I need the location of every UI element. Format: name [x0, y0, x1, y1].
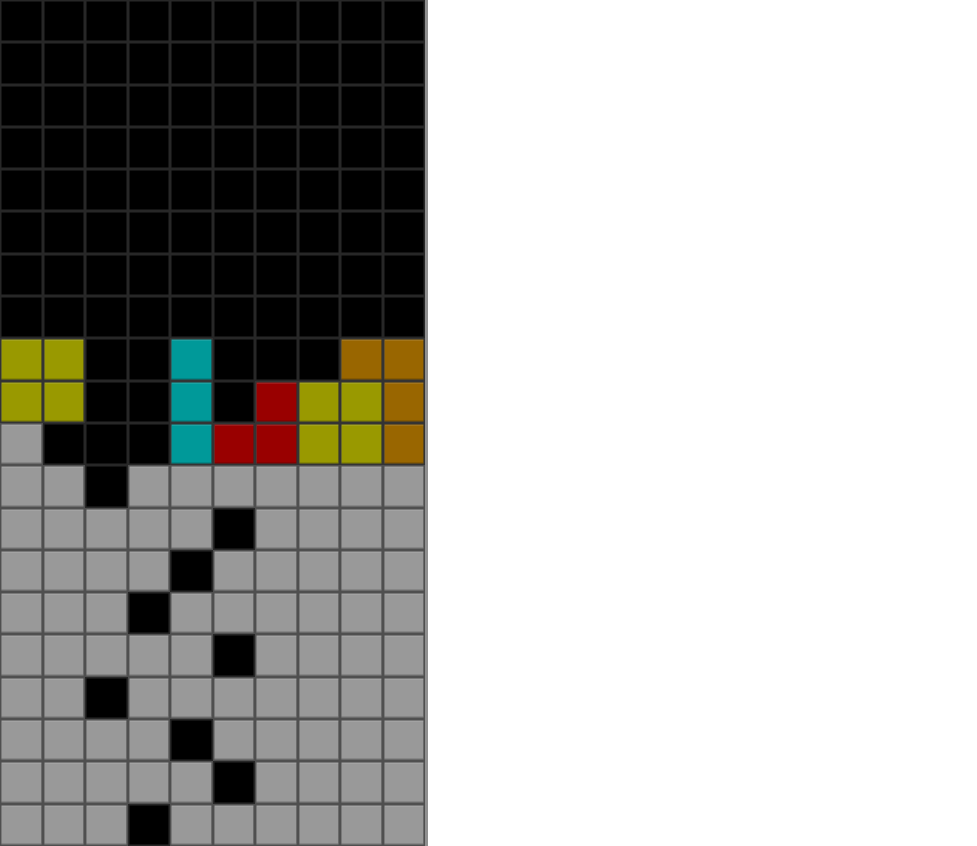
board-cell-empty	[255, 211, 298, 253]
board-cell-red-block	[255, 423, 298, 465]
board-cell-garbage-block	[128, 634, 171, 676]
board-cell-olive-block	[0, 381, 43, 423]
board-cell-garbage-block	[298, 761, 341, 803]
board-cell-garbage-block	[43, 804, 86, 846]
board-cell-garbage-block	[85, 761, 128, 803]
board-cell-garbage-block	[0, 465, 43, 507]
board-cell-olive-block	[43, 338, 86, 380]
board-cell-empty	[0, 127, 43, 169]
board-cell-empty	[128, 296, 171, 338]
board-cell-olive-block	[340, 423, 383, 465]
board-cell-teal-block	[170, 381, 213, 423]
board-cell-empty	[128, 85, 171, 127]
board-cell-empty	[128, 211, 171, 253]
board-cell-garbage-block	[0, 761, 43, 803]
board-cell-garbage-block	[255, 804, 298, 846]
board-cell-empty	[85, 127, 128, 169]
board-cell-garbage-block	[43, 634, 86, 676]
board-cell-garbage-block	[298, 719, 341, 761]
board-cell-empty	[255, 169, 298, 211]
board-cell-empty	[170, 169, 213, 211]
board-cell-garbage-block	[255, 465, 298, 507]
board-cell-garbage-block	[213, 465, 256, 507]
board-cell-garbage-block	[255, 550, 298, 592]
board-cell-garbage-block	[383, 508, 426, 550]
board-cell-empty	[383, 42, 426, 84]
board-cell-garbage-block	[170, 634, 213, 676]
board-cell-garbage-block	[128, 761, 171, 803]
page-canvas	[0, 0, 977, 846]
board-cell-teal-block	[170, 423, 213, 465]
board-cell-empty	[128, 592, 171, 634]
board-cell-empty	[255, 338, 298, 380]
board-cell-garbage-block	[383, 804, 426, 846]
board-cell-garbage-block	[0, 719, 43, 761]
board-cell-empty	[85, 465, 128, 507]
board-cell-garbage-block	[0, 804, 43, 846]
board-cell-garbage-block	[85, 719, 128, 761]
board-cell-empty	[128, 254, 171, 296]
board-cell-empty	[85, 423, 128, 465]
board-cell-garbage-block	[170, 761, 213, 803]
board-cell-empty	[255, 254, 298, 296]
board-cell-garbage-block	[213, 804, 256, 846]
board-cell-empty	[170, 254, 213, 296]
board-cell-empty	[383, 211, 426, 253]
board-cell-empty	[298, 169, 341, 211]
board-cell-orange-block	[383, 423, 426, 465]
board-cell-empty	[340, 0, 383, 42]
board-cell-empty	[0, 169, 43, 211]
board-cell-empty	[213, 42, 256, 84]
board-cell-empty	[213, 0, 256, 42]
board-cell-garbage-block	[43, 592, 86, 634]
board-cell-garbage-block	[43, 508, 86, 550]
board-cell-empty	[213, 296, 256, 338]
board-cell-garbage-block	[85, 634, 128, 676]
board-cell-olive-block	[340, 381, 383, 423]
board-cell-garbage-block	[298, 550, 341, 592]
board-cell-garbage-block	[0, 550, 43, 592]
board-cell-garbage-block	[0, 634, 43, 676]
board-cell-empty	[170, 550, 213, 592]
board-cell-garbage-block	[255, 592, 298, 634]
board-cell-empty	[298, 338, 341, 380]
board-cell-garbage-block	[85, 592, 128, 634]
board-cell-garbage-block	[0, 592, 43, 634]
board-cell-garbage-block	[43, 761, 86, 803]
board-cell-garbage-block	[43, 677, 86, 719]
board-cell-empty	[85, 254, 128, 296]
board-cell-empty	[340, 169, 383, 211]
board-cell-empty	[213, 338, 256, 380]
board-cell-empty	[85, 296, 128, 338]
board-cell-garbage-block	[340, 677, 383, 719]
board-cell-garbage-block	[128, 550, 171, 592]
board-cell-garbage-block	[170, 465, 213, 507]
board-cell-empty	[340, 42, 383, 84]
board-cell-empty	[298, 127, 341, 169]
board-cell-empty	[170, 42, 213, 84]
board-cell-garbage-block	[340, 761, 383, 803]
board-cell-garbage-block	[298, 592, 341, 634]
board-cell-orange-block	[383, 338, 426, 380]
board-cell-empty	[0, 254, 43, 296]
board-cell-empty	[340, 211, 383, 253]
board-cell-empty	[85, 211, 128, 253]
board-cell-empty	[213, 127, 256, 169]
board-cell-empty	[213, 254, 256, 296]
board-cell-teal-block	[170, 338, 213, 380]
board-cell-empty	[85, 85, 128, 127]
board-cell-empty	[213, 211, 256, 253]
board-cell-garbage-block	[85, 508, 128, 550]
board-cell-garbage-block	[383, 465, 426, 507]
board-cell-orange-block	[340, 338, 383, 380]
board-cell-empty	[170, 296, 213, 338]
board-cell-garbage-block	[255, 761, 298, 803]
board-cell-empty	[213, 169, 256, 211]
board-cell-empty	[85, 677, 128, 719]
board-cell-garbage-block	[298, 508, 341, 550]
board-cell-garbage-block	[340, 550, 383, 592]
board-cell-garbage-block	[340, 465, 383, 507]
board-cell-garbage-block	[43, 550, 86, 592]
board-cell-garbage-block	[340, 592, 383, 634]
board-cell-empty	[43, 423, 86, 465]
board-cell-garbage-block	[0, 423, 43, 465]
board-cell-garbage-block	[340, 634, 383, 676]
board-cell-garbage-block	[43, 465, 86, 507]
board-cell-garbage-block	[255, 677, 298, 719]
board-cell-garbage-block	[43, 719, 86, 761]
board-cell-garbage-block	[340, 804, 383, 846]
board-cell-empty	[383, 85, 426, 127]
tetris-playfield	[0, 0, 428, 846]
board-cell-garbage-block	[340, 508, 383, 550]
board-cell-garbage-block	[85, 550, 128, 592]
board-cell-empty	[255, 0, 298, 42]
board-cell-empty	[298, 211, 341, 253]
board-cell-orange-block	[383, 381, 426, 423]
board-cell-empty	[43, 0, 86, 42]
board-cell-empty	[0, 296, 43, 338]
board-cell-empty	[298, 42, 341, 84]
board-cell-empty	[0, 0, 43, 42]
board-cell-empty	[43, 42, 86, 84]
board-cell-empty	[383, 127, 426, 169]
board-cell-empty	[298, 254, 341, 296]
board-cell-garbage-block	[213, 550, 256, 592]
board-cell-empty	[298, 0, 341, 42]
board-cell-empty	[255, 127, 298, 169]
board-cell-empty	[340, 85, 383, 127]
board-cell-empty	[43, 85, 86, 127]
board-cell-empty	[128, 338, 171, 380]
board-cell-empty	[170, 127, 213, 169]
board-cell-empty	[85, 169, 128, 211]
board-cell-empty	[43, 127, 86, 169]
board-cell-empty	[128, 804, 171, 846]
board-cell-garbage-block	[298, 465, 341, 507]
board-cell-garbage-block	[170, 677, 213, 719]
board-cell-empty	[340, 127, 383, 169]
board-cell-garbage-block	[298, 804, 341, 846]
board-cell-empty	[298, 85, 341, 127]
board-cell-empty	[43, 296, 86, 338]
board-cell-empty	[43, 169, 86, 211]
board-cell-garbage-block	[128, 465, 171, 507]
board-cell-garbage-block	[128, 719, 171, 761]
board-cell-empty	[128, 423, 171, 465]
board-cell-empty	[85, 0, 128, 42]
board-cell-empty	[85, 338, 128, 380]
board-cell-olive-block	[298, 381, 341, 423]
board-cell-garbage-block	[0, 677, 43, 719]
board-cell-empty	[170, 85, 213, 127]
board-cell-empty	[255, 85, 298, 127]
board-cell-garbage-block	[383, 677, 426, 719]
board-cell-empty	[85, 42, 128, 84]
board-cell-garbage-block	[128, 508, 171, 550]
board-cell-empty	[213, 381, 256, 423]
board-cell-empty	[213, 761, 256, 803]
board-cell-garbage-block	[383, 761, 426, 803]
board-cell-garbage-block	[170, 804, 213, 846]
board-cell-empty	[43, 211, 86, 253]
board-cell-empty	[383, 169, 426, 211]
board-cell-empty	[340, 296, 383, 338]
board-cell-garbage-block	[213, 719, 256, 761]
board-cell-garbage-block	[128, 677, 171, 719]
board-cell-garbage-block	[340, 719, 383, 761]
board-cell-garbage-block	[255, 508, 298, 550]
board-cell-empty	[213, 85, 256, 127]
board-cell-empty	[128, 169, 171, 211]
board-cell-empty	[340, 254, 383, 296]
board-cell-empty	[0, 211, 43, 253]
board-cell-olive-block	[0, 338, 43, 380]
board-cell-garbage-block	[298, 677, 341, 719]
board-cell-empty	[170, 719, 213, 761]
board-cell-empty	[383, 0, 426, 42]
board-cell-garbage-block	[298, 634, 341, 676]
board-cell-empty	[298, 296, 341, 338]
board-cell-empty	[170, 0, 213, 42]
board-cell-garbage-block	[255, 719, 298, 761]
board-cell-garbage-block	[383, 550, 426, 592]
board-cell-olive-block	[298, 423, 341, 465]
board-cell-olive-block	[43, 381, 86, 423]
board-cell-garbage-block	[213, 677, 256, 719]
board-cell-empty	[0, 42, 43, 84]
board-cell-garbage-block	[85, 804, 128, 846]
board-cell-empty	[255, 42, 298, 84]
board-cell-empty	[213, 508, 256, 550]
board-cell-empty	[255, 296, 298, 338]
board-cell-garbage-block	[383, 592, 426, 634]
board-cell-red-block	[255, 381, 298, 423]
board-cell-empty	[383, 254, 426, 296]
board-cell-empty	[383, 296, 426, 338]
board-cell-empty	[128, 127, 171, 169]
board-cell-empty	[43, 254, 86, 296]
board-cell-empty	[128, 42, 171, 84]
board-cell-garbage-block	[383, 719, 426, 761]
board-cell-red-block	[213, 423, 256, 465]
board-cell-empty	[213, 634, 256, 676]
board-cell-empty	[170, 211, 213, 253]
board-cell-garbage-block	[255, 634, 298, 676]
board-cell-empty	[0, 85, 43, 127]
board-cell-garbage-block	[213, 592, 256, 634]
board-cell-garbage-block	[170, 508, 213, 550]
board-cell-garbage-block	[0, 508, 43, 550]
board-cell-garbage-block	[170, 592, 213, 634]
board-cell-empty	[85, 381, 128, 423]
board-cell-empty	[128, 0, 171, 42]
board-cell-garbage-block	[383, 634, 426, 676]
board-cell-empty	[128, 381, 171, 423]
